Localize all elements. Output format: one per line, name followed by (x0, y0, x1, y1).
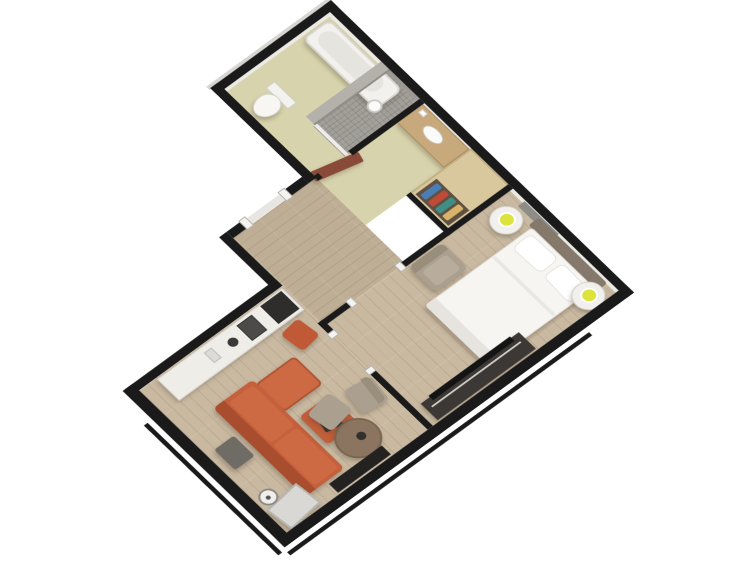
floorplan-scene (0, 12, 619, 544)
floorplan-image (0, 0, 750, 570)
